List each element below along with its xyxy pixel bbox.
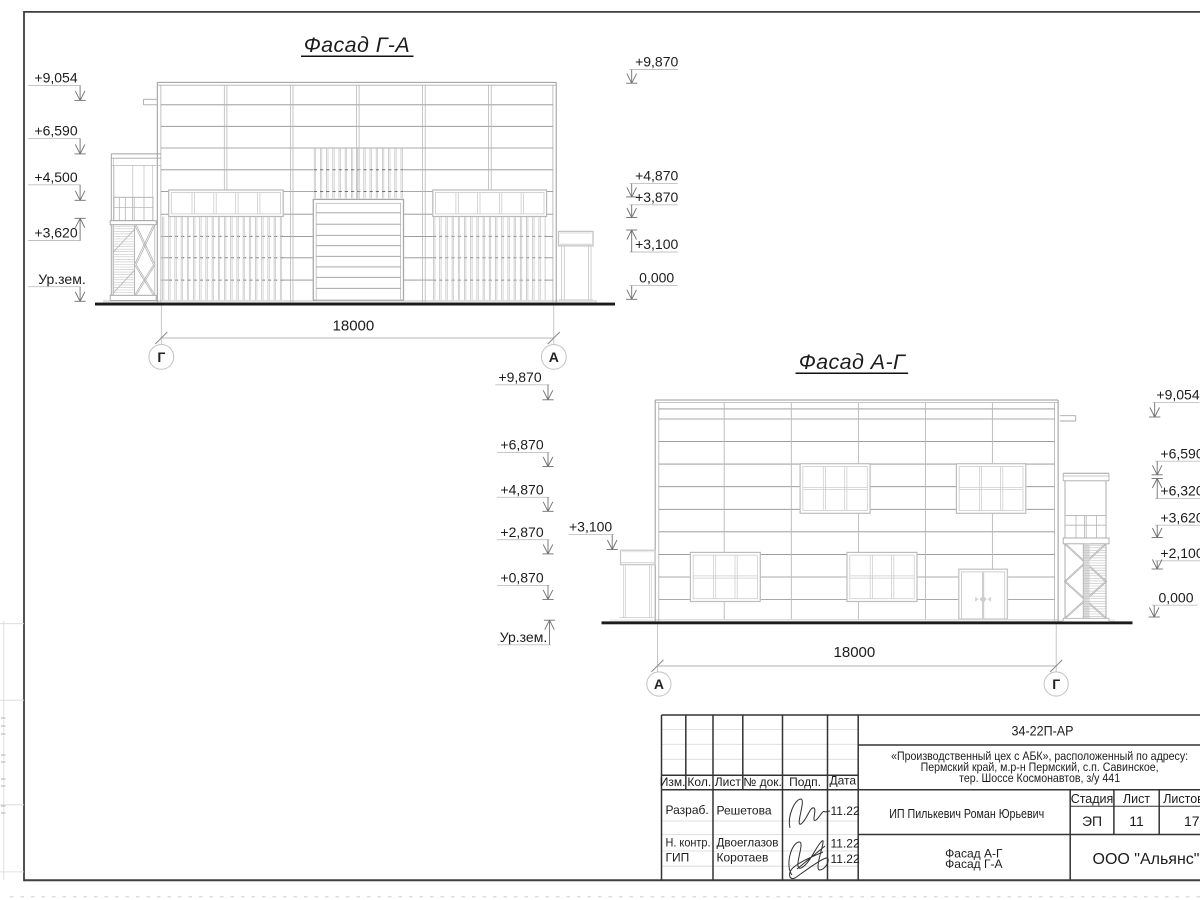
svg-text:0,000: 0,000 (1158, 589, 1193, 605)
svg-text:тер. Шоссе Космонавтов, з/у 44: тер. Шоссе Космонавтов, з/у 441 (959, 771, 1120, 785)
svg-text:А: А (549, 349, 559, 365)
svg-text:+4,500: +4,500 (34, 169, 77, 185)
svg-text:Дата: Дата (830, 774, 857, 788)
svg-text:+2,870: +2,870 (500, 524, 543, 540)
svg-text:+2,100: +2,100 (1160, 545, 1200, 561)
svg-text:+9,870: +9,870 (498, 369, 541, 385)
svg-text:Лист: Лист (1123, 792, 1150, 806)
svg-text:Г: Г (157, 349, 165, 365)
svg-text:+6,320: +6,320 (1160, 483, 1200, 499)
svg-text:Ур.зем.: Ур.зем. (500, 629, 548, 645)
svg-text:+6,590: +6,590 (1160, 445, 1200, 461)
svg-text:+3,100: +3,100 (569, 519, 612, 535)
svg-text:+6,590: +6,590 (34, 123, 77, 139)
svg-text:+3,620: +3,620 (1160, 509, 1200, 525)
svg-text:11: 11 (1129, 813, 1144, 829)
svg-text:17: 17 (1184, 813, 1200, 829)
svg-text:ГИП: ГИП (666, 851, 690, 865)
svg-text:Г: Г (1052, 676, 1060, 692)
svg-text:11.22: 11.22 (831, 852, 860, 866)
svg-text:Двоеглазов: Двоеглазов (717, 836, 779, 850)
svg-text:Фасад А-Г: Фасад А-Г (799, 350, 907, 374)
svg-text:Подп.: Подп. (789, 775, 821, 789)
svg-text:ЭП: ЭП (1082, 813, 1102, 829)
svg-text:Решетова: Решетова (717, 804, 772, 818)
svg-text:+6,870: +6,870 (500, 437, 543, 453)
svg-text:+4,870: +4,870 (635, 168, 678, 184)
svg-text:34-22П-АР: 34-22П-АР (1012, 722, 1074, 738)
svg-text:№ док.: № док. (743, 775, 781, 789)
svg-text:18000: 18000 (834, 644, 876, 661)
svg-text:11.22: 11.22 (831, 837, 860, 851)
svg-text:Н. контр.: Н. контр. (666, 836, 711, 850)
svg-text:Фасад Г-А: Фасад Г-А (945, 857, 1002, 871)
svg-text:Стадия: Стадия (1071, 792, 1114, 806)
svg-text:Изм.: Изм. (660, 775, 686, 789)
svg-text:Кол.: Кол. (687, 775, 711, 789)
svg-text:18000: 18000 (333, 317, 375, 334)
svg-text:Разраб.: Разраб. (666, 803, 709, 817)
svg-text:ИП Пилькевич Роман Юрьевич: ИП Пилькевич Роман Юрьевич (889, 807, 1044, 821)
svg-text:+9,054: +9,054 (1156, 387, 1199, 403)
svg-text:Коротаев: Коротаев (717, 851, 769, 865)
svg-text:+0,870: +0,870 (500, 570, 543, 586)
svg-text:Фасад Г-А: Фасад Г-А (304, 33, 410, 57)
svg-text:+9,870: +9,870 (635, 54, 678, 70)
svg-text:Лист: Лист (715, 775, 742, 789)
svg-text:0,000: 0,000 (639, 270, 674, 286)
svg-text:А: А (654, 676, 664, 692)
svg-text:+4,870: +4,870 (500, 481, 543, 497)
svg-text:Ур.зем.: Ур.зем. (38, 271, 86, 287)
svg-text:ООО "Альянс": ООО "Альянс" (1093, 851, 1200, 868)
svg-text:+3,620: +3,620 (34, 225, 77, 241)
svg-text:+3,100: +3,100 (635, 236, 678, 252)
svg-text:+3,870: +3,870 (635, 189, 678, 205)
svg-text:+9,054: +9,054 (34, 70, 77, 86)
svg-text:11.22: 11.22 (831, 804, 860, 818)
svg-text:Листов: Листов (1163, 792, 1200, 806)
